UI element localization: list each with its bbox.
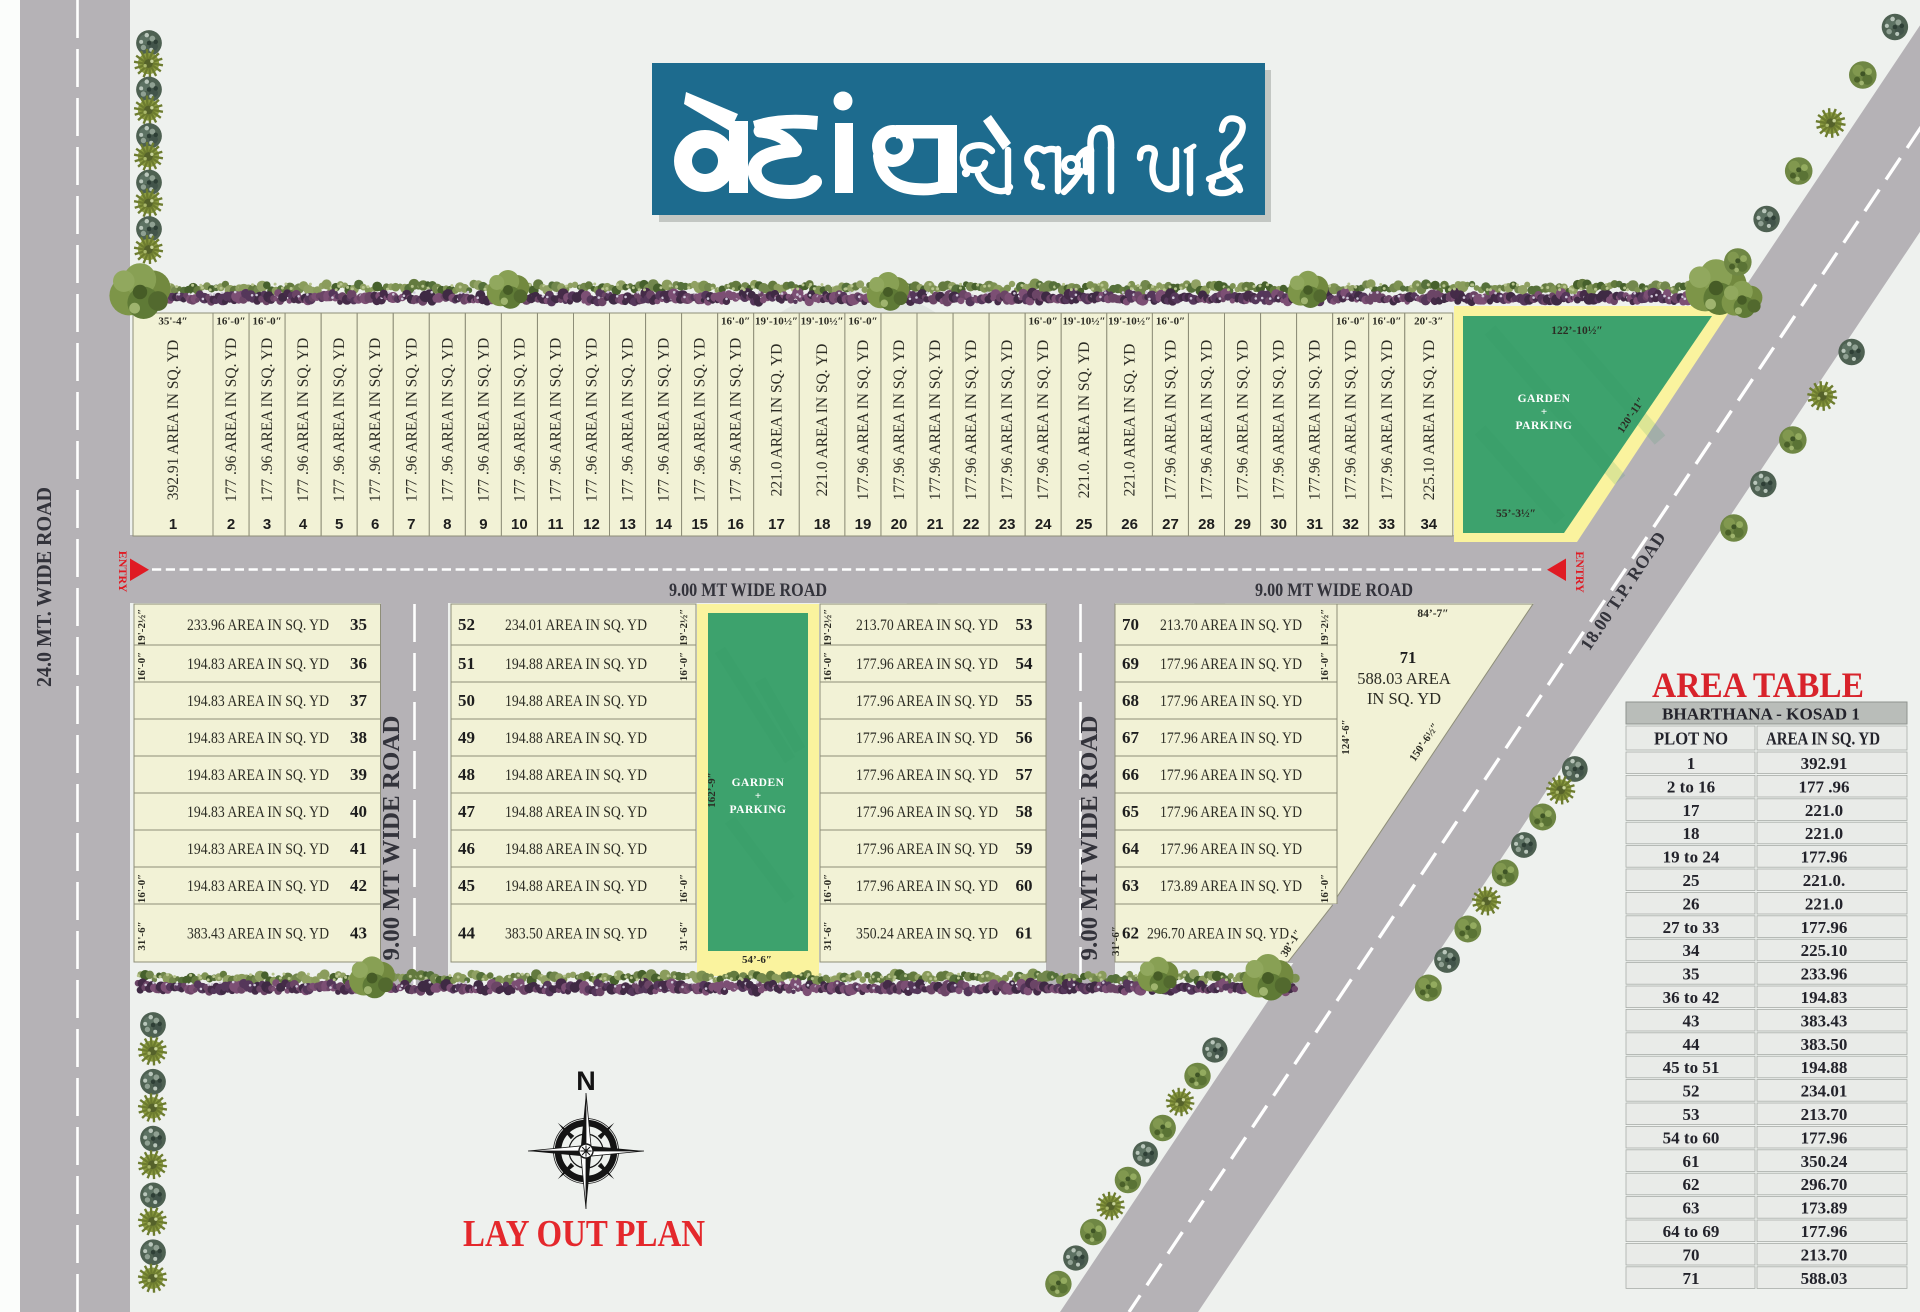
svg-text:233.96 AREA IN SQ. YD: 233.96 AREA IN SQ. YD: [187, 617, 329, 634]
svg-text:18: 18: [814, 516, 831, 533]
svg-text:194.88 AREA IN SQ. YD: 194.88 AREA IN SQ. YD: [505, 878, 647, 895]
svg-text:177 .96 AREA IN SQ. YD: 177 .96 AREA IN SQ. YD: [548, 338, 565, 502]
svg-text:64 to 69: 64 to 69: [1663, 1222, 1720, 1241]
svg-text:16'-0″: 16'-0″: [1336, 316, 1365, 328]
svg-text:16'-0″: 16'-0″: [678, 874, 690, 903]
svg-text:34: 34: [1420, 516, 1437, 533]
svg-text:20: 20: [891, 516, 908, 533]
svg-text:19 to 24: 19 to 24: [1663, 848, 1720, 867]
svg-text:63: 63: [1122, 876, 1139, 895]
svg-text:ENTRY: ENTRY: [116, 551, 130, 593]
svg-text:AREA IN SQ. YD: AREA IN SQ. YD: [1766, 729, 1880, 749]
svg-text:16'-0″: 16'-0″: [216, 316, 245, 328]
svg-text:51: 51: [458, 654, 475, 673]
svg-text:42: 42: [350, 876, 367, 895]
svg-text:26: 26: [1121, 516, 1138, 533]
svg-text:194.88 AREA IN SQ. YD: 194.88 AREA IN SQ. YD: [505, 693, 647, 710]
svg-text:177 .96 AREA IN SQ. YD: 177 .96 AREA IN SQ. YD: [584, 338, 601, 502]
svg-text:221.0 AREA IN SQ. YD: 221.0 AREA IN SQ. YD: [814, 344, 831, 497]
svg-text:PLOT NO: PLOT NO: [1654, 729, 1728, 749]
svg-text:34: 34: [1683, 941, 1701, 960]
svg-text:70: 70: [1122, 615, 1139, 634]
svg-text:221.0. AREA IN SQ. YD: 221.0. AREA IN SQ. YD: [1076, 342, 1093, 499]
svg-text:45 to 51: 45 to 51: [1663, 1058, 1720, 1077]
svg-text:17: 17: [768, 516, 785, 533]
svg-text:122’-10½″: 122’-10½″: [1551, 325, 1602, 337]
svg-text:194.83 AREA IN SQ. YD: 194.83 AREA IN SQ. YD: [187, 804, 329, 821]
svg-text:177.96 AREA IN SQ. YD: 177.96 AREA IN SQ. YD: [1035, 340, 1052, 500]
svg-text:350.24: 350.24: [1801, 1152, 1848, 1171]
svg-text:53: 53: [1016, 615, 1033, 634]
svg-text:1: 1: [169, 516, 177, 533]
svg-text:7: 7: [407, 516, 415, 533]
svg-text:13: 13: [619, 516, 636, 533]
svg-text:49: 49: [458, 728, 475, 747]
svg-text:16'-0″: 16'-0″: [136, 874, 148, 903]
svg-text:194.83 AREA IN SQ. YD: 194.83 AREA IN SQ. YD: [187, 841, 329, 858]
svg-text:234.01: 234.01: [1801, 1082, 1848, 1101]
svg-text:20'-3″: 20'-3″: [1414, 316, 1443, 328]
svg-text:19: 19: [855, 516, 872, 533]
svg-text:588.03: 588.03: [1801, 1269, 1848, 1288]
svg-text:177 .96 AREA IN SQ. YD: 177 .96 AREA IN SQ. YD: [331, 338, 348, 502]
svg-text:19'-2½″: 19'-2½″: [822, 609, 834, 647]
svg-text:19'-10½″: 19'-10½″: [1062, 316, 1105, 328]
svg-text:36: 36: [350, 654, 367, 673]
svg-text:16'-0″: 16'-0″: [1372, 316, 1401, 328]
svg-text:194.88: 194.88: [1801, 1058, 1848, 1077]
svg-text:70: 70: [1683, 1245, 1700, 1264]
svg-text:31'-6″: 31'-6″: [822, 921, 834, 950]
svg-text:194.88 AREA IN SQ. YD: 194.88 AREA IN SQ. YD: [505, 656, 647, 673]
svg-text:177 .96 AREA IN SQ. YD: 177 .96 AREA IN SQ. YD: [259, 338, 276, 502]
svg-text:177.96 AREA IN SQ. YD: 177.96 AREA IN SQ. YD: [1160, 730, 1302, 747]
svg-text:234.01 AREA IN SQ. YD: 234.01 AREA IN SQ. YD: [505, 617, 647, 634]
svg-text:35: 35: [350, 615, 367, 634]
svg-text:52: 52: [1683, 1082, 1700, 1101]
svg-text:LAY OUT PLAN: LAY OUT PLAN: [463, 1213, 705, 1255]
svg-text:124’-6″: 124’-6″: [1340, 719, 1352, 754]
svg-text:9: 9: [479, 516, 487, 533]
svg-text:177.96 AREA IN SQ. YD: 177.96 AREA IN SQ. YD: [1235, 340, 1252, 500]
svg-text:58: 58: [1016, 802, 1033, 821]
svg-text:68: 68: [1122, 691, 1139, 710]
svg-text:177 .96 AREA IN SQ. YD: 177 .96 AREA IN SQ. YD: [620, 338, 637, 502]
svg-text:177.96 AREA IN SQ. YD: 177.96 AREA IN SQ. YD: [1271, 340, 1288, 500]
svg-text:PARKING: PARKING: [1516, 420, 1573, 432]
svg-text:56: 56: [1016, 728, 1033, 747]
svg-text:27: 27: [1162, 516, 1179, 533]
svg-text:194.83 AREA IN SQ. YD: 194.83 AREA IN SQ. YD: [187, 656, 329, 673]
svg-text:21: 21: [927, 516, 944, 533]
svg-text:177.96: 177.96: [1801, 1222, 1848, 1241]
svg-text:177.96 AREA IN SQ. YD: 177.96 AREA IN SQ. YD: [856, 767, 998, 784]
svg-text:46: 46: [458, 839, 475, 858]
svg-text:60: 60: [1016, 876, 1033, 895]
svg-text:31'-6″: 31'-6″: [136, 921, 148, 950]
svg-text:177.96 AREA IN SQ. YD: 177.96 AREA IN SQ. YD: [1160, 841, 1302, 858]
svg-text:19'-2½″: 19'-2½″: [1319, 609, 1331, 647]
svg-text:221.0 AREA IN SQ. YD: 221.0 AREA IN SQ. YD: [769, 344, 786, 497]
svg-text:19'-2½″: 19'-2½″: [136, 609, 148, 647]
svg-text:177.96 AREA IN SQ. YD: 177.96 AREA IN SQ. YD: [856, 804, 998, 821]
svg-text:177 .96 AREA IN SQ. YD: 177 .96 AREA IN SQ. YD: [692, 338, 709, 502]
svg-text:383.50: 383.50: [1801, 1035, 1848, 1054]
svg-text:32: 32: [1342, 516, 1359, 533]
svg-text:55’-3½″: 55’-3½″: [1496, 508, 1536, 520]
svg-text:213.70: 213.70: [1801, 1105, 1848, 1124]
svg-text:24.0 MT. WIDE ROAD: 24.0 MT. WIDE ROAD: [32, 487, 56, 687]
svg-text:177 .96 AREA IN SQ. YD: 177 .96 AREA IN SQ. YD: [656, 338, 673, 502]
svg-text:16'-0″: 16'-0″: [136, 652, 148, 681]
svg-text:66: 66: [1122, 765, 1139, 784]
svg-text:17: 17: [1683, 801, 1701, 820]
svg-text:16'-0″: 16'-0″: [721, 316, 750, 328]
svg-text:221.0: 221.0: [1805, 801, 1843, 820]
svg-text:9.00 MT WIDE ROAD: 9.00 MT WIDE ROAD: [1255, 580, 1413, 601]
svg-text:392.91 AREA IN SQ. YD: 392.91 AREA IN SQ. YD: [165, 340, 182, 500]
svg-text:43: 43: [350, 924, 367, 943]
svg-text:5: 5: [335, 516, 343, 533]
svg-text:16'-0″: 16'-0″: [822, 652, 834, 681]
svg-text:221.0: 221.0: [1805, 824, 1843, 843]
svg-text:194.83 AREA IN SQ. YD: 194.83 AREA IN SQ. YD: [187, 878, 329, 895]
svg-text:173.89 AREA IN SQ. YD: 173.89 AREA IN SQ. YD: [1160, 878, 1302, 895]
svg-text:31’-6″: 31’-6″: [1110, 926, 1122, 956]
svg-text:213.70 AREA IN SQ. YD: 213.70 AREA IN SQ. YD: [1160, 617, 1302, 634]
svg-text:61: 61: [1683, 1152, 1700, 1171]
svg-text:19'-10½″: 19'-10½″: [801, 316, 844, 328]
svg-text:177.96 AREA IN SQ. YD: 177.96 AREA IN SQ. YD: [1160, 656, 1302, 673]
svg-text:31: 31: [1306, 516, 1323, 533]
svg-text:57: 57: [1016, 765, 1034, 784]
svg-text:37: 37: [350, 691, 368, 710]
svg-text:47: 47: [458, 802, 476, 821]
svg-text:233.96: 233.96: [1801, 965, 1848, 984]
svg-text:39: 39: [350, 765, 367, 784]
svg-text:33: 33: [1378, 516, 1395, 533]
svg-text:PARKING: PARKING: [730, 804, 787, 816]
svg-text:177 .96 AREA IN SQ. YD: 177 .96 AREA IN SQ. YD: [223, 338, 240, 502]
svg-text:54: 54: [1016, 654, 1034, 673]
svg-text:15: 15: [691, 516, 708, 533]
svg-text:194.88 AREA IN SQ. YD: 194.88 AREA IN SQ. YD: [505, 841, 647, 858]
svg-text:29: 29: [1234, 516, 1251, 533]
svg-text:12: 12: [583, 516, 600, 533]
svg-text:35'-4″: 35'-4″: [158, 316, 187, 328]
svg-text:4: 4: [299, 516, 308, 533]
svg-text:221.0: 221.0: [1805, 894, 1843, 913]
svg-text:28: 28: [1198, 516, 1215, 533]
svg-text:177.96 AREA IN SQ. YD: 177.96 AREA IN SQ. YD: [1160, 767, 1302, 784]
svg-text:59: 59: [1016, 839, 1033, 858]
svg-text:52: 52: [458, 615, 475, 634]
svg-text:2 to 16: 2 to 16: [1667, 777, 1715, 796]
svg-text:3: 3: [263, 516, 271, 533]
svg-text:177.96 AREA IN SQ. YD: 177.96 AREA IN SQ. YD: [891, 340, 908, 500]
svg-text:19'-10½″: 19'-10½″: [755, 316, 798, 328]
svg-text:24: 24: [1035, 516, 1052, 533]
svg-text:194.88 AREA IN SQ. YD: 194.88 AREA IN SQ. YD: [505, 730, 647, 747]
svg-text:177.96 AREA IN SQ. YD: 177.96 AREA IN SQ. YD: [1379, 340, 1396, 500]
svg-text:+: +: [755, 790, 761, 802]
svg-text:25: 25: [1076, 516, 1093, 533]
svg-text:11: 11: [548, 516, 564, 533]
svg-text:16'-0″: 16'-0″: [678, 652, 690, 681]
svg-text:177.96 AREA IN SQ. YD: 177.96 AREA IN SQ. YD: [927, 340, 944, 500]
svg-text:BHARTHANA - KOSAD 1: BHARTHANA - KOSAD 1: [1662, 705, 1860, 724]
svg-text:173.89: 173.89: [1801, 1199, 1848, 1218]
svg-text:177.96 AREA IN SQ. YD: 177.96 AREA IN SQ. YD: [999, 340, 1016, 500]
svg-text:177.96 AREA IN SQ. YD: 177.96 AREA IN SQ. YD: [1163, 340, 1180, 500]
svg-text:44: 44: [458, 924, 476, 943]
svg-text:ENTRY: ENTRY: [1573, 551, 1587, 593]
svg-text:18: 18: [1683, 824, 1700, 843]
svg-text:31'-6″: 31'-6″: [678, 921, 690, 950]
svg-text:27 to 33: 27 to 33: [1663, 918, 1720, 937]
svg-text:9.00 MT WIDE ROAD: 9.00 MT WIDE ROAD: [379, 716, 405, 961]
svg-text:84’-7″: 84’-7″: [1417, 608, 1448, 620]
svg-text:54’-6″: 54’-6″: [742, 954, 772, 966]
svg-text:16'-0″: 16'-0″: [1029, 316, 1058, 328]
svg-text:177 .96: 177 .96: [1799, 777, 1850, 796]
svg-text:53: 53: [1683, 1105, 1700, 1124]
svg-text:177.96: 177.96: [1801, 1128, 1848, 1147]
svg-text:177 .96 AREA IN SQ. YD: 177 .96 AREA IN SQ. YD: [511, 338, 528, 502]
svg-text:45: 45: [458, 876, 475, 895]
svg-text:221.0.: 221.0.: [1803, 871, 1846, 890]
svg-text:177 .96 AREA IN SQ. YD: 177 .96 AREA IN SQ. YD: [475, 338, 492, 502]
svg-text:19'-2½″: 19'-2½″: [678, 609, 690, 647]
svg-text:177.96 AREA IN SQ. YD: 177.96 AREA IN SQ. YD: [1199, 340, 1216, 500]
svg-text:177.96 AREA IN SQ. YD: 177.96 AREA IN SQ. YD: [1307, 340, 1324, 500]
svg-text:177.96 AREA IN SQ. YD: 177.96 AREA IN SQ. YD: [1160, 693, 1302, 710]
svg-text:213.70: 213.70: [1801, 1245, 1848, 1264]
svg-text:55: 55: [1016, 691, 1033, 710]
svg-text:AREA TABLE: AREA TABLE: [1652, 665, 1864, 705]
svg-text:16'-0″: 16'-0″: [822, 874, 834, 903]
svg-text:16: 16: [727, 516, 744, 533]
svg-text:177.96 AREA IN SQ. YD: 177.96 AREA IN SQ. YD: [856, 693, 998, 710]
svg-text:177.96 AREA IN SQ. YD: 177.96 AREA IN SQ. YD: [856, 730, 998, 747]
svg-text:194.83: 194.83: [1801, 988, 1848, 1007]
svg-text:54 to 60: 54 to 60: [1663, 1128, 1720, 1147]
svg-text:177 .96 AREA IN SQ. YD: 177 .96 AREA IN SQ. YD: [439, 338, 456, 502]
svg-text:43: 43: [1683, 1011, 1700, 1030]
svg-text:36 to 42: 36 to 42: [1663, 988, 1720, 1007]
svg-text:GARDEN: GARDEN: [1518, 393, 1571, 405]
svg-text:16'-0″: 16'-0″: [848, 316, 877, 328]
svg-text:50: 50: [458, 691, 475, 710]
svg-text:62: 62: [1683, 1175, 1700, 1194]
svg-text:N: N: [576, 1066, 596, 1096]
svg-text:1: 1: [1687, 754, 1696, 773]
svg-text:63: 63: [1683, 1199, 1700, 1218]
svg-text:225.10 AREA IN SQ. YD: 225.10 AREA IN SQ. YD: [1421, 340, 1438, 500]
svg-text:383.50 AREA IN SQ. YD: 383.50 AREA IN SQ. YD: [505, 926, 647, 943]
svg-text:177 .96 AREA IN SQ. YD: 177 .96 AREA IN SQ. YD: [295, 338, 312, 502]
svg-text:194.83 AREA IN SQ. YD: 194.83 AREA IN SQ. YD: [187, 730, 329, 747]
svg-text:177.96 AREA IN SQ. YD: 177.96 AREA IN SQ. YD: [856, 878, 998, 895]
svg-text:177 .96 AREA IN SQ. YD: 177 .96 AREA IN SQ. YD: [728, 338, 745, 502]
svg-text:30: 30: [1270, 516, 1287, 533]
svg-text:71: 71: [1683, 1269, 1700, 1288]
svg-text:16'-0″: 16'-0″: [1319, 874, 1331, 903]
svg-text:22: 22: [963, 516, 980, 533]
svg-text:162’-9″: 162’-9″: [706, 772, 718, 807]
svg-text:221.0 AREA IN SQ. YD: 221.0 AREA IN SQ. YD: [1122, 344, 1139, 497]
svg-text:8: 8: [443, 516, 451, 533]
svg-text:GARDEN: GARDEN: [732, 777, 785, 789]
svg-text:177.96 AREA IN SQ. YD: 177.96 AREA IN SQ. YD: [1343, 340, 1360, 500]
svg-text:41: 41: [350, 839, 367, 858]
svg-text:296.70 AREA IN SQ. YD: 296.70 AREA IN SQ. YD: [1147, 926, 1289, 943]
svg-text:9.00 MT WIDE ROAD: 9.00 MT WIDE ROAD: [669, 580, 827, 601]
svg-text:40: 40: [350, 802, 367, 821]
svg-text:25: 25: [1683, 871, 1700, 890]
svg-text:64: 64: [1122, 839, 1140, 858]
svg-text:177 .96 AREA IN SQ. YD: 177 .96 AREA IN SQ. YD: [403, 338, 420, 502]
svg-text:177.96 AREA IN SQ. YD: 177.96 AREA IN SQ. YD: [1160, 804, 1302, 821]
svg-text:194.83 AREA IN SQ. YD: 194.83 AREA IN SQ. YD: [187, 693, 329, 710]
svg-text:69: 69: [1122, 654, 1139, 673]
svg-text:19'-10½″: 19'-10½″: [1108, 316, 1151, 328]
svg-text:177.96 AREA IN SQ. YD: 177.96 AREA IN SQ. YD: [855, 340, 872, 500]
svg-text:65: 65: [1122, 802, 1139, 821]
svg-text:194.88 AREA IN SQ. YD: 194.88 AREA IN SQ. YD: [505, 767, 647, 784]
svg-text:383.43 AREA IN SQ. YD: 383.43 AREA IN SQ. YD: [187, 926, 329, 943]
svg-text:177 .96 AREA IN SQ. YD: 177 .96 AREA IN SQ. YD: [367, 338, 384, 502]
svg-text:177.96 AREA IN SQ. YD: 177.96 AREA IN SQ. YD: [963, 340, 980, 500]
svg-text:35: 35: [1683, 965, 1700, 984]
svg-text:194.83 AREA IN SQ. YD: 194.83 AREA IN SQ. YD: [187, 767, 329, 784]
svg-text:IN SQ. YD: IN SQ. YD: [1367, 689, 1441, 708]
svg-text:588.03 AREA: 588.03 AREA: [1357, 669, 1451, 688]
svg-text:61: 61: [1016, 924, 1033, 943]
svg-text:383.43: 383.43: [1801, 1011, 1848, 1030]
svg-text:177.96 AREA IN SQ. YD: 177.96 AREA IN SQ. YD: [856, 656, 998, 673]
svg-text:+: +: [1541, 406, 1547, 418]
svg-text:16'-0″: 16'-0″: [1319, 652, 1331, 681]
svg-text:177.96 AREA IN SQ. YD: 177.96 AREA IN SQ. YD: [856, 841, 998, 858]
svg-text:62: 62: [1122, 924, 1139, 943]
svg-text:16'-0″: 16'-0″: [252, 316, 281, 328]
svg-text:392.91: 392.91: [1801, 754, 1848, 773]
svg-text:9.00 MT WIDE ROAD: 9.00 MT WIDE ROAD: [1077, 716, 1103, 961]
svg-text:71: 71: [1400, 648, 1417, 667]
svg-text:38: 38: [350, 728, 367, 747]
svg-text:48: 48: [458, 765, 475, 784]
svg-text:23: 23: [999, 516, 1016, 533]
svg-text:194.88 AREA IN SQ. YD: 194.88 AREA IN SQ. YD: [505, 804, 647, 821]
svg-text:350.24 AREA IN SQ. YD: 350.24 AREA IN SQ. YD: [856, 926, 998, 943]
svg-text:2: 2: [227, 516, 235, 533]
svg-text:14: 14: [655, 516, 672, 533]
svg-text:67: 67: [1122, 728, 1140, 747]
svg-text:6: 6: [371, 516, 379, 533]
svg-text:16'-0″: 16'-0″: [1156, 316, 1185, 328]
svg-text:177.96: 177.96: [1801, 918, 1848, 937]
svg-text:10: 10: [511, 516, 528, 533]
svg-text:296.70: 296.70: [1801, 1175, 1848, 1194]
svg-text:177.96: 177.96: [1801, 848, 1848, 867]
svg-text:44: 44: [1683, 1035, 1701, 1054]
svg-text:225.10: 225.10: [1801, 941, 1848, 960]
svg-text:213.70 AREA IN SQ. YD: 213.70 AREA IN SQ. YD: [856, 617, 998, 634]
svg-text:26: 26: [1683, 894, 1700, 913]
